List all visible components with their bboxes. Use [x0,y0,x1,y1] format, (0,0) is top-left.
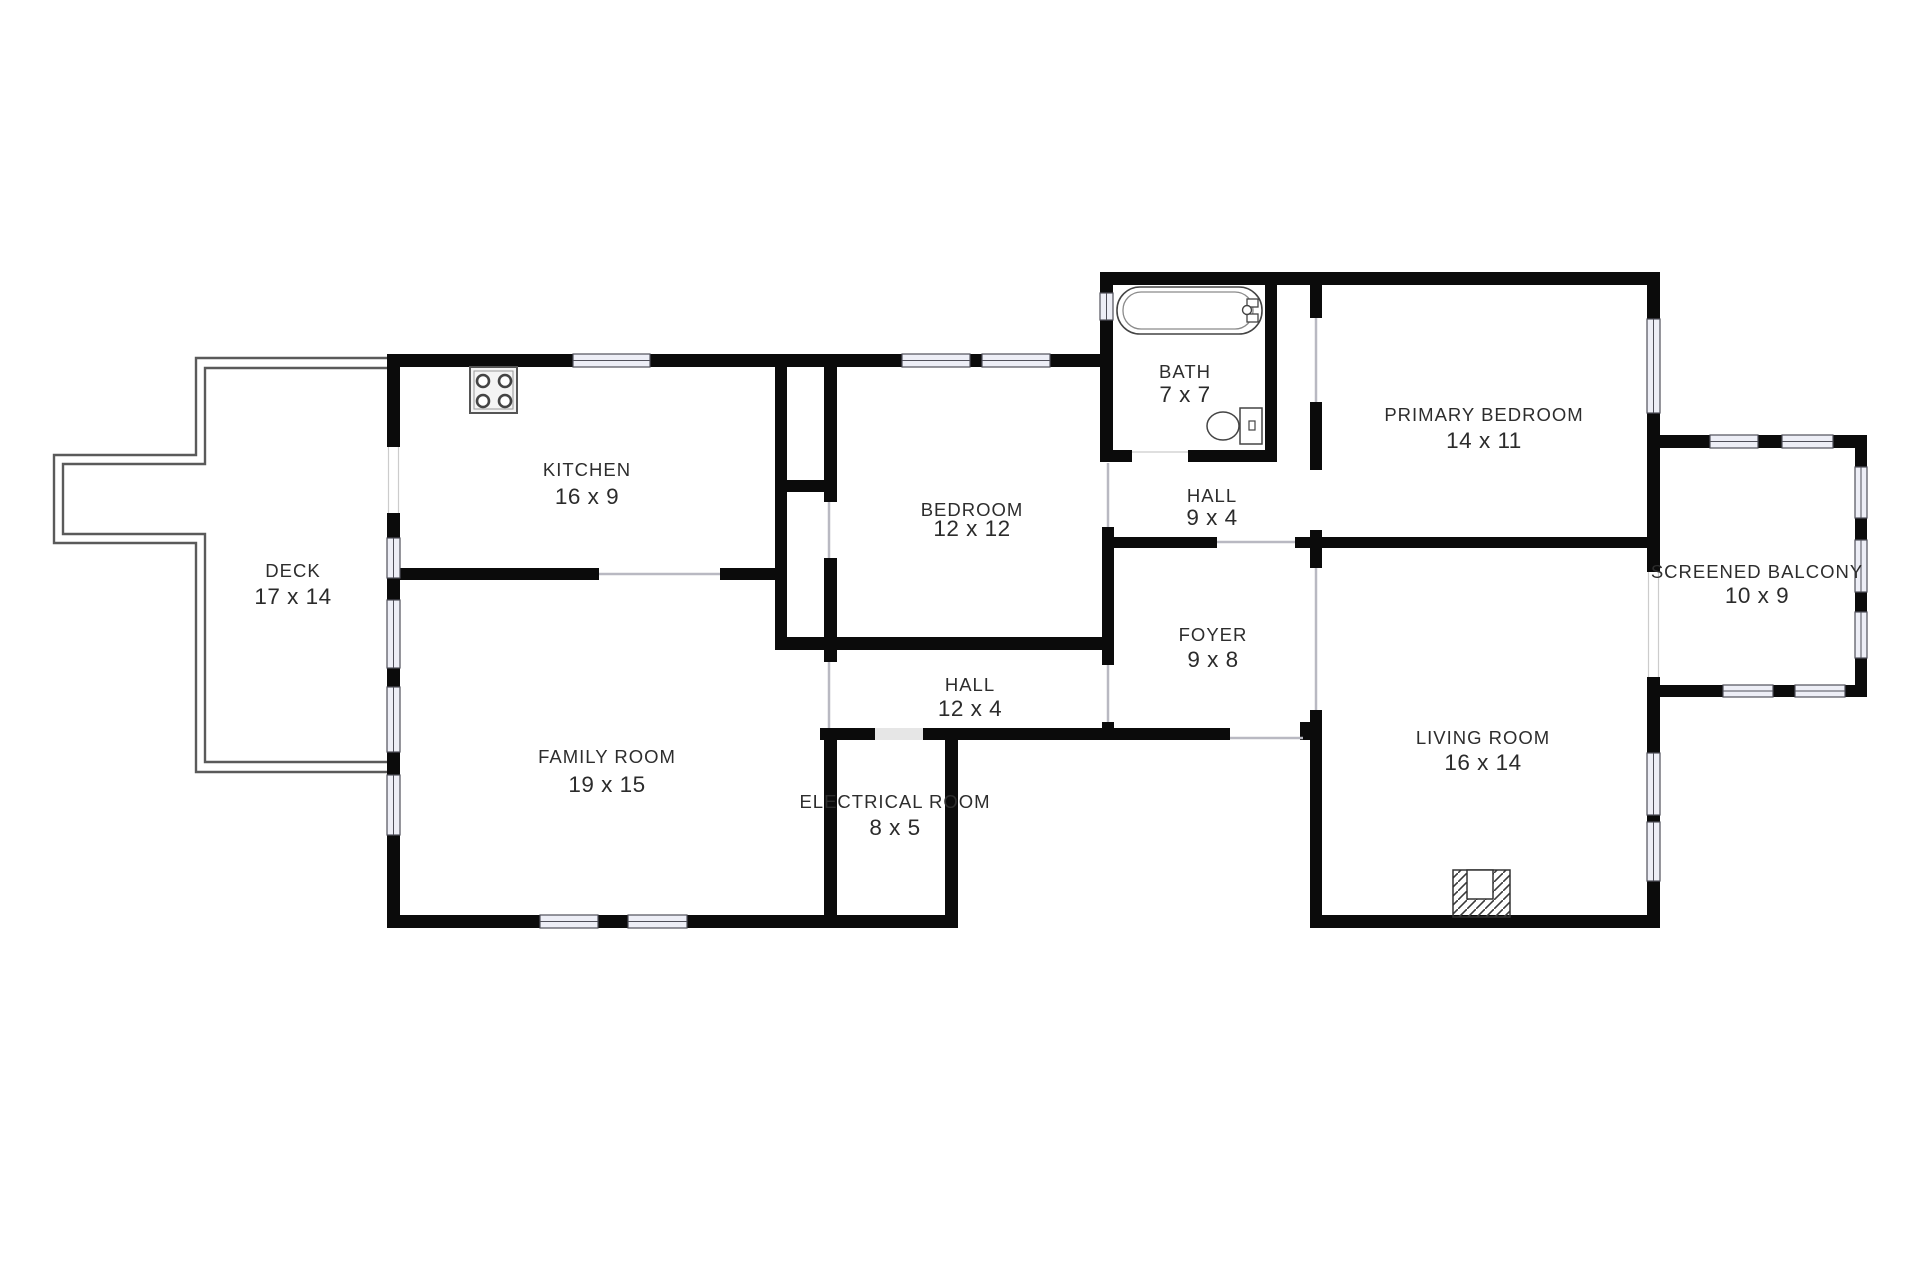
room-label-kitchen: KITCHEN [543,459,631,480]
electrical-door-opening [875,728,923,740]
room-label-foyer: FOYER [1179,624,1248,645]
room-label-living-room: LIVING ROOM [1416,727,1550,748]
floor-plan: DECK 17 x 14 KITCHEN 16 x 9 BEDROOM 12 x… [0,0,1920,1280]
room-label-deck: DECK [265,560,320,581]
room-dims-hall-lower: 12 x 4 [938,696,1002,721]
door-openings [389,318,1659,740]
fireplace-icon [1453,870,1510,917]
room-dims-electrical-room: 8 x 5 [869,815,920,840]
bathtub-icon [1117,287,1262,334]
room-label-family-room: FAMILY ROOM [538,746,676,767]
room-dims-family-room: 19 x 15 [568,772,645,797]
room-dims-foyer: 9 x 8 [1187,647,1238,672]
room-dims-bath: 7 x 7 [1159,382,1210,407]
room-dims-deck: 17 x 14 [254,584,331,609]
room-label-hall-upper: HALL [1187,485,1237,506]
room-label-hall-lower: HALL [945,674,995,695]
room-label-primary-bedroom: PRIMARY BEDROOM [1384,404,1583,425]
floor-plan-svg: DECK 17 x 14 KITCHEN 16 x 9 BEDROOM 12 x… [0,0,1920,1280]
toilet-icon [1207,408,1262,444]
stove-icon [470,367,517,413]
room-dims-living-room: 16 x 14 [1444,750,1521,775]
room-label-screened-balcony: SCREENED BALCONY [1651,561,1863,582]
room-dims-hall-upper: 9 x 4 [1186,505,1237,530]
room-dims-kitchen: 16 x 9 [555,484,619,509]
walls [387,272,1867,928]
room-label-electrical-room: ELECTRICAL ROOM [799,791,990,812]
room-label-bath: BATH [1159,361,1211,382]
room-dims-screened-balcony: 10 x 9 [1725,583,1789,608]
room-labels: DECK 17 x 14 KITCHEN 16 x 9 BEDROOM 12 x… [254,361,1863,840]
room-dims-primary-bedroom: 14 x 11 [1446,428,1522,453]
windows [387,293,1867,928]
room-dims-bedroom: 12 x 12 [933,516,1010,541]
deck-railing [54,358,400,772]
